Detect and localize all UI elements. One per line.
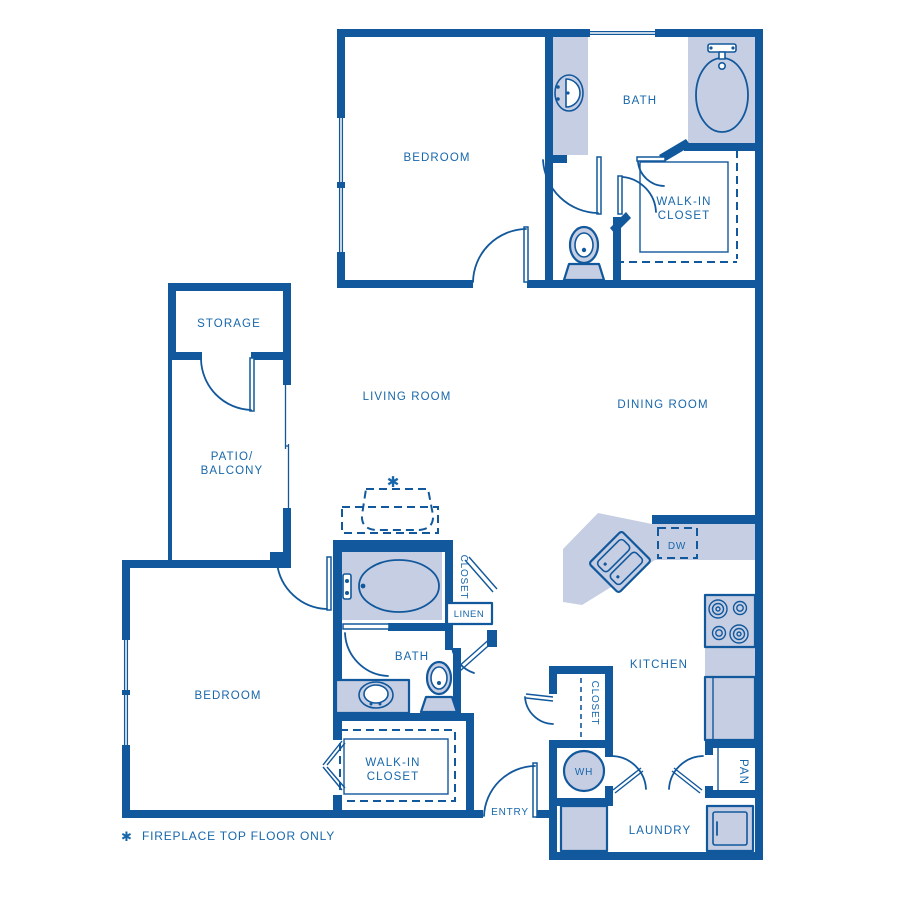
door-storage: [201, 358, 254, 411]
label-linen: LINEN: [454, 609, 484, 620]
kitchen-counter-side: [705, 647, 755, 677]
footnote-text: FIREPLACE TOP FLOOR ONLY: [142, 829, 335, 843]
label-patio-line2: BALCONY: [201, 465, 264, 477]
label-laundry: LAUNDRY: [629, 825, 691, 837]
toilet-upper-icon: [564, 227, 604, 280]
label-wic-upper-line1: WALK-IN: [656, 196, 711, 208]
floor-plan-drawing: BEDROOM BATH WALK-IN CLOSET STORAGE LIVI…: [0, 0, 900, 900]
label-wic-lower-line1: WALK-IN: [365, 757, 420, 769]
label-water-heater: WH: [575, 767, 593, 778]
label-storage: STORAGE: [197, 318, 261, 330]
label-bath-lower: BATH: [395, 651, 429, 663]
door-bath-lower-west: [343, 624, 389, 676]
label-dishwasher: DW: [668, 541, 686, 552]
door-hall-closet: [525, 694, 553, 724]
footnote-star-icon: ✱: [121, 829, 132, 844]
label-dining-room: DINING ROOM: [617, 399, 708, 411]
fireplace-star-icon: ✱: [387, 474, 400, 491]
label-wic-upper-line2: CLOSET: [658, 210, 711, 222]
window-bedroom-lower: [122, 640, 130, 745]
floor-plan-canvas: BEDROOM BATH WALK-IN CLOSET STORAGE LIVI…: [0, 0, 900, 900]
window-bath-upper: [590, 29, 655, 37]
patio-sliding-door: [286, 385, 289, 508]
bath-lower-tub-platform: [342, 552, 442, 620]
washer-icon: [561, 806, 607, 851]
label-bedroom-lower: BEDROOM: [194, 690, 261, 702]
label-bedroom-upper: BEDROOM: [403, 152, 470, 164]
label-bath-upper: BATH: [623, 95, 657, 107]
door-bedroom-upper: [473, 227, 528, 282]
door-pantry: [669, 756, 703, 793]
fireplace-icon: [342, 489, 438, 533]
stove-icon: [705, 595, 755, 647]
sink-upper-icon: [555, 75, 583, 111]
label-patio-line1: PATIO/: [211, 451, 254, 463]
label-kitchen: KITCHEN: [630, 659, 688, 671]
label-entry: ENTRY: [491, 807, 529, 818]
door-water-heater: [612, 756, 646, 793]
dryer-icon: [707, 806, 753, 851]
label-closet-bath: CLOSET: [458, 555, 469, 600]
label-closet-hall: CLOSET: [589, 681, 600, 726]
door-wic-lower-bifold: [323, 741, 345, 790]
toilet-lower-icon: [421, 662, 457, 712]
label-pantry: PAN: [737, 759, 749, 785]
refrigerator-icon: [705, 677, 755, 740]
label-living-room: LIVING ROOM: [363, 391, 452, 403]
vanity-lower-icon: [336, 680, 409, 713]
label-wic-lower-line2: CLOSET: [367, 771, 420, 783]
window-bedroom-upper: [337, 118, 345, 252]
